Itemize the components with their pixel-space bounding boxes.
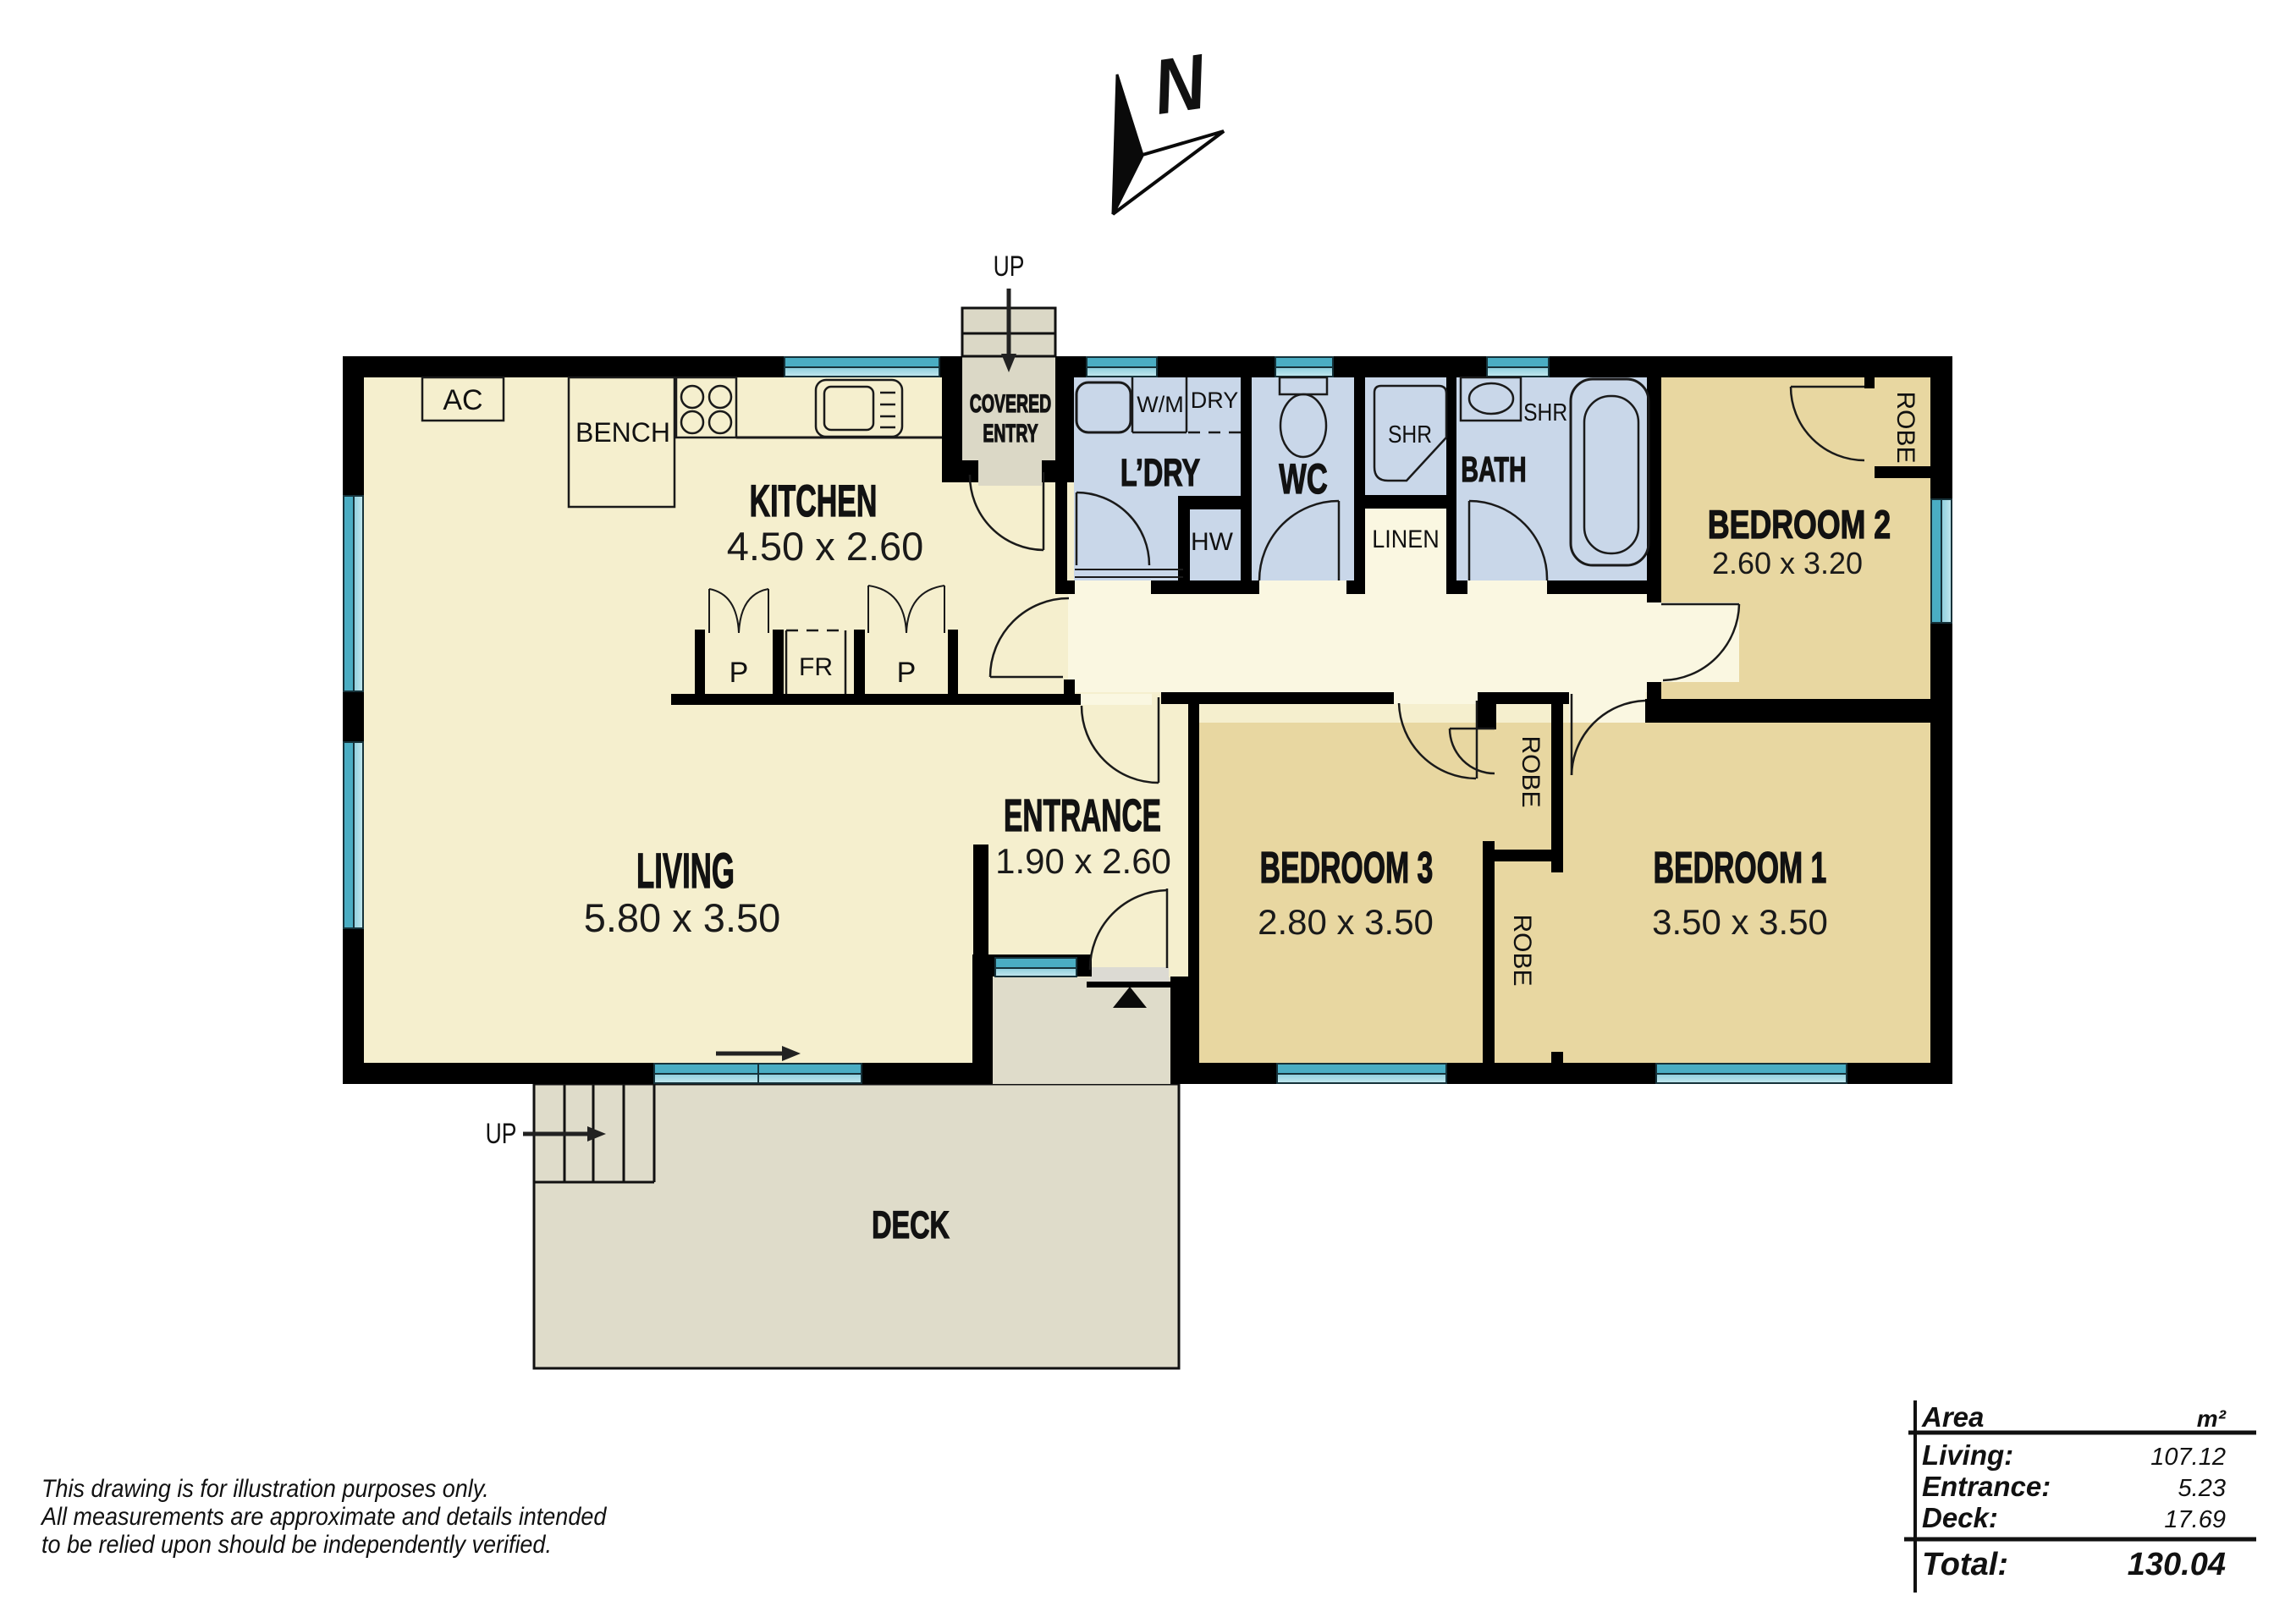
svg-text:3.50 x 3.50: 3.50 x 3.50 [1652,902,1828,942]
svg-text:AC: AC [443,384,482,416]
svg-text:BEDROOM 3: BEDROOM 3 [1260,844,1434,893]
svg-text:LINEN: LINEN [1372,525,1439,554]
svg-text:WC: WC [1279,456,1327,503]
svg-text:BENCH: BENCH [575,417,670,448]
svg-text:KITCHEN: KITCHEN [750,477,878,526]
svg-text:2.80 x 3.50: 2.80 x 3.50 [1258,902,1434,942]
svg-text:5.80 x 3.50: 5.80 x 3.50 [584,895,781,940]
svg-text:107.12: 107.12 [2150,1444,2226,1471]
svg-text:BEDROOM 2: BEDROOM 2 [1708,502,1891,547]
svg-text:DECK: DECK [872,1205,950,1246]
svg-text:ROBE: ROBE [1891,391,1919,463]
svg-text:2.60 x 3.20: 2.60 x 3.20 [1712,546,1863,580]
svg-text:HW: HW [1191,528,1234,556]
svg-text:SHR: SHR [1388,421,1432,448]
svg-text:P: P [897,657,917,689]
svg-text:to be relied upon should be in: to be relied upon should be independentl… [41,1531,552,1560]
svg-text:All measurements are approxima: All measurements are approximate and det… [40,1503,607,1532]
svg-text:17.69: 17.69 [2164,1506,2226,1533]
svg-text:130.04: 130.04 [2128,1547,2226,1582]
svg-text:P: P [730,657,749,689]
svg-text:Living:: Living: [1922,1439,2013,1471]
svg-text:Entrance:: Entrance: [1922,1471,2051,1502]
svg-text:DRY: DRY [1191,388,1239,413]
svg-text:Area: Area [1921,1401,1984,1433]
svg-text:m²: m² [2197,1406,2227,1432]
svg-text:4.50 x 2.60: 4.50 x 2.60 [727,524,924,569]
svg-text:5.23: 5.23 [2178,1475,2226,1502]
svg-text:L’DRY: L’DRY [1120,453,1200,494]
svg-text:ENTRANCE: ENTRANCE [1004,789,1161,841]
svg-text:ROBE: ROBE [1517,735,1544,807]
svg-text:W/M: W/M [1137,392,1183,417]
svg-text:Deck:: Deck: [1922,1502,1998,1533]
svg-text:LIVING: LIVING [636,845,735,899]
svg-text:FR: FR [799,653,833,681]
svg-text:Total:: Total: [1922,1547,2008,1582]
svg-text:ROBE: ROBE [1508,914,1536,986]
svg-text:ENTRY: ENTRY [983,420,1038,448]
svg-text:SHR: SHR [1523,399,1567,426]
svg-text:This drawing is for illustrati: This drawing is for illustration purpose… [41,1475,489,1504]
svg-text:BATH: BATH [1461,448,1526,489]
svg-text:COVERED: COVERED [970,390,1051,418]
svg-text:BEDROOM 1: BEDROOM 1 [1654,844,1827,893]
svg-text:UP: UP [994,250,1025,283]
svg-text:UP: UP [486,1118,517,1150]
svg-text:1.90 x 2.60: 1.90 x 2.60 [995,841,1171,881]
